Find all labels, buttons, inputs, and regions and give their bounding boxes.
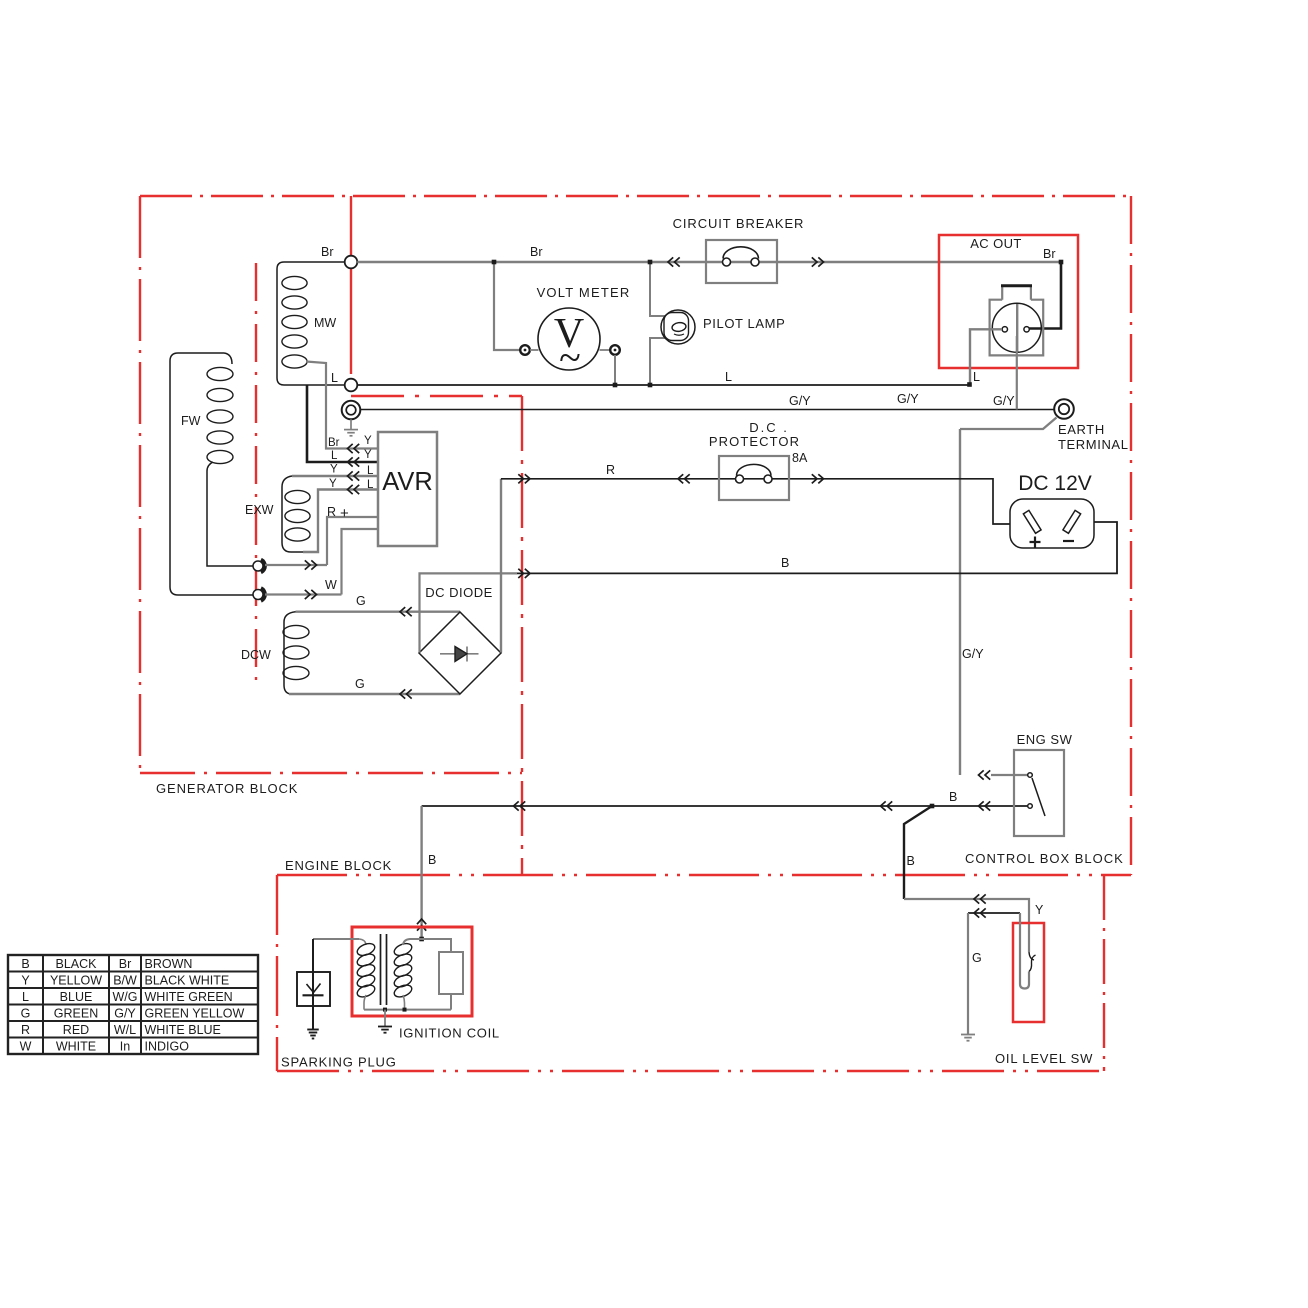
svg-text:D.C .: D.C . [749, 420, 789, 435]
svg-text:BLUE: BLUE [60, 990, 93, 1004]
svg-text:G: G [356, 594, 366, 608]
svg-text:RED: RED [63, 1023, 89, 1037]
svg-text:CIRCUIT BREAKER: CIRCUIT BREAKER [673, 216, 805, 231]
svg-text:L: L [367, 479, 374, 491]
svg-text:G: G [355, 677, 365, 691]
svg-text:ENGINE BLOCK: ENGINE BLOCK [285, 858, 392, 873]
svg-text:G/Y: G/Y [897, 392, 919, 406]
svg-text:Y: Y [364, 435, 372, 447]
svg-text:TERMINAL: TERMINAL [1058, 437, 1129, 452]
svg-text:CONTROL BOX BLOCK: CONTROL BOX BLOCK [965, 851, 1124, 866]
svg-text:Br: Br [119, 957, 132, 971]
svg-text:GREEN YELLOW: GREEN YELLOW [145, 1007, 245, 1021]
svg-text:B: B [781, 556, 789, 570]
svg-text:IGNITION COIL: IGNITION COIL [399, 1026, 500, 1041]
svg-text:B/W: B/W [113, 974, 137, 988]
svg-text:BROWN: BROWN [145, 957, 193, 971]
svg-text:WHITE BLUE: WHITE BLUE [145, 1023, 221, 1037]
svg-text:B: B [949, 790, 957, 804]
svg-text:GENERATOR BLOCK: GENERATOR BLOCK [156, 781, 298, 796]
svg-text:PILOT LAMP: PILOT LAMP [703, 316, 785, 331]
svg-text:~: ~ [559, 335, 581, 380]
svg-text:BLACK WHITE: BLACK WHITE [145, 974, 230, 988]
svg-text:AVR: AVR [382, 468, 433, 496]
svg-text:Y: Y [330, 464, 338, 476]
svg-text:PROTECTOR: PROTECTOR [709, 434, 800, 449]
svg-text:L: L [973, 370, 980, 384]
svg-text:EXW: EXW [245, 503, 274, 517]
svg-text:B: B [907, 854, 915, 868]
svg-text:G/Y: G/Y [114, 1007, 136, 1021]
svg-text:L: L [367, 465, 374, 477]
svg-text:DC 12V: DC 12V [1018, 472, 1092, 495]
svg-text:YELLOW: YELLOW [50, 974, 102, 988]
svg-text:ENG SW: ENG SW [1017, 732, 1073, 747]
svg-text:In: In [120, 1040, 130, 1054]
svg-text:Br: Br [530, 245, 543, 259]
svg-text:OIL LEVEL SW: OIL LEVEL SW [995, 1051, 1093, 1066]
svg-text:G/Y: G/Y [993, 394, 1015, 408]
svg-text:L: L [331, 450, 338, 462]
svg-text:Br: Br [321, 245, 334, 259]
svg-text:EARTH: EARTH [1058, 422, 1105, 437]
svg-text:Y: Y [329, 478, 337, 490]
svg-text:AC OUT: AC OUT [970, 236, 1022, 251]
svg-text:L: L [331, 371, 338, 385]
svg-text:BLACK: BLACK [56, 957, 98, 971]
svg-text:G/Y: G/Y [789, 394, 811, 408]
svg-text:B: B [428, 853, 436, 867]
svg-text:G: G [21, 1007, 31, 1021]
svg-text:L: L [22, 990, 29, 1004]
svg-text:Y: Y [21, 974, 30, 988]
svg-text:INDIGO: INDIGO [145, 1040, 190, 1054]
svg-text:+: + [340, 505, 349, 522]
svg-text:DC DIODE: DC DIODE [425, 585, 493, 600]
svg-text:G: G [972, 951, 982, 965]
svg-text:W/G: W/G [113, 990, 138, 1004]
svg-text:W/L: W/L [114, 1023, 136, 1037]
svg-text:W: W [20, 1040, 32, 1054]
svg-text:R: R [21, 1023, 30, 1037]
svg-text:L: L [725, 370, 732, 384]
svg-text:G/Y: G/Y [962, 647, 984, 661]
svg-text:GREEN: GREEN [54, 1007, 98, 1021]
svg-text:R: R [327, 505, 336, 519]
svg-text:DCW: DCW [241, 648, 271, 662]
svg-text:W: W [325, 578, 337, 592]
svg-text:B: B [21, 957, 29, 971]
svg-text:SPARKING PLUG: SPARKING PLUG [281, 1055, 397, 1070]
svg-text:FW: FW [181, 414, 201, 428]
svg-text:8A: 8A [792, 451, 808, 465]
svg-text:WHITE: WHITE [56, 1040, 96, 1054]
svg-text:MW: MW [314, 316, 336, 330]
svg-text:VOLT METER: VOLT METER [537, 285, 631, 300]
svg-text:Y: Y [364, 449, 372, 461]
svg-text:Br: Br [328, 437, 340, 449]
svg-text:WHITE GREEN: WHITE GREEN [145, 990, 233, 1004]
svg-text:Br: Br [1043, 247, 1056, 261]
svg-text:Y: Y [1035, 903, 1044, 917]
svg-text:R: R [606, 463, 615, 477]
